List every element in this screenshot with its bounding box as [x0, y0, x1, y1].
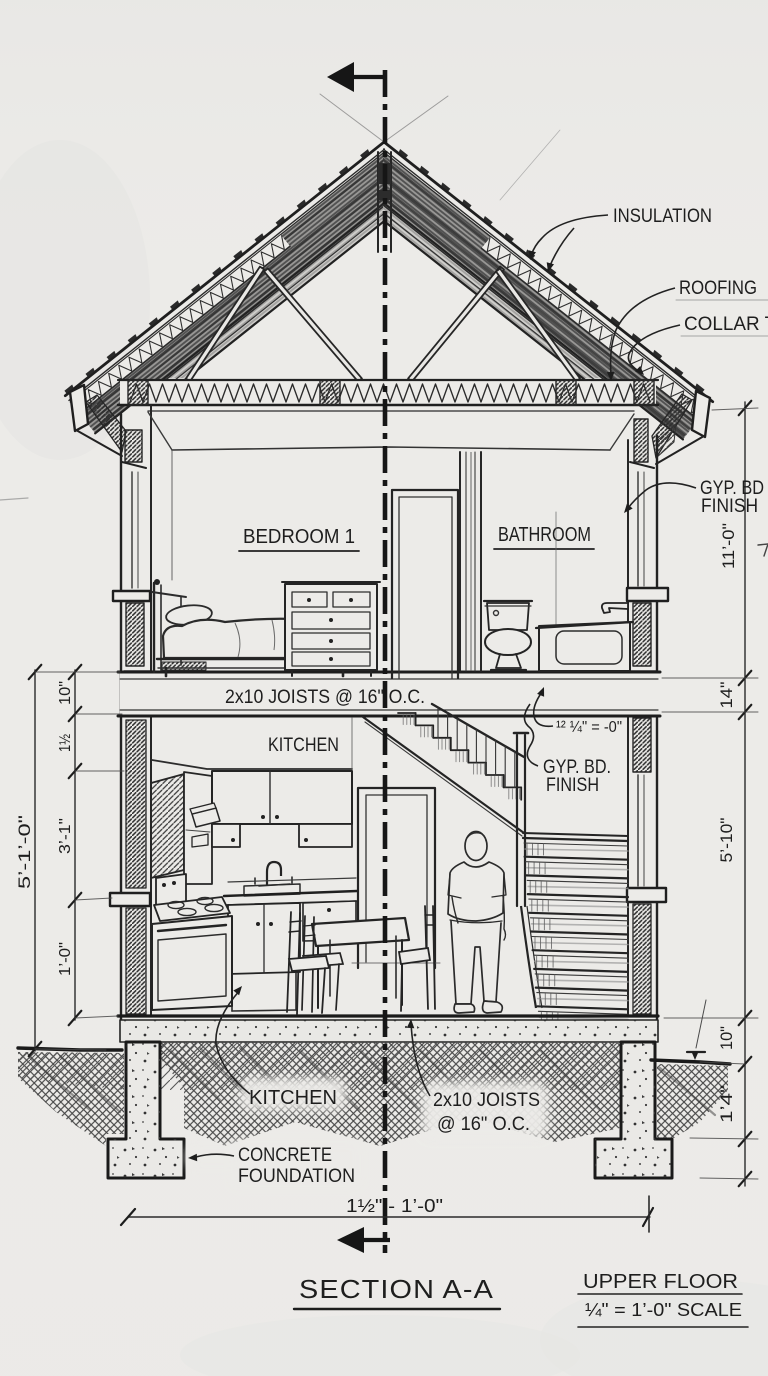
svg-text:FOUNDATION: FOUNDATION	[238, 1166, 355, 1187]
svg-text:3’-1": 3’-1"	[57, 818, 74, 854]
svg-text:@ 16" O.C.: @ 16" O.C.	[437, 1114, 530, 1135]
svg-text:5’-10": 5’-10"	[717, 818, 736, 863]
svg-text:BEDROOM 1: BEDROOM 1	[243, 526, 355, 548]
svg-text:14": 14"	[717, 682, 736, 709]
svg-text:CONCRETE: CONCRETE	[238, 1145, 332, 1166]
svg-text:2x10 JOISTS: 2x10 JOISTS	[433, 1090, 540, 1111]
svg-text:¼" = 1’-0" SCALE: ¼" = 1’-0" SCALE	[585, 1300, 742, 1320]
svg-text:5’-1’-0": 5’-1’-0"	[15, 815, 34, 889]
svg-text:1’4": 1’4"	[717, 1085, 736, 1123]
svg-text:1½: 1½	[57, 734, 74, 752]
svg-text:COLLAR TIE: COLLAR TIE	[684, 314, 768, 335]
svg-text:KITCHEN: KITCHEN	[268, 735, 339, 756]
svg-text:FINISH: FINISH	[701, 496, 758, 517]
svg-text:SECTION A-A: SECTION A-A	[299, 1274, 494, 1304]
svg-text:2x10 JOISTS @ 16" O.C.: 2x10 JOISTS @ 16" O.C.	[225, 687, 425, 708]
svg-text:1’-0": 1’-0"	[57, 942, 74, 976]
svg-text:UPPER FLOOR: UPPER FLOOR	[583, 1271, 738, 1293]
svg-text:BATHROOM: BATHROOM	[498, 524, 591, 546]
svg-text:11’-0": 11’-0"	[719, 523, 738, 569]
svg-text:FINISH: FINISH	[546, 775, 599, 796]
svg-text:¹² ¼" = -0": ¹² ¼" = -0"	[556, 719, 622, 736]
svg-text:KITCHEN: KITCHEN	[249, 1087, 337, 1109]
svg-text:1½" - 1’-0": 1½" - 1’-0"	[346, 1196, 443, 1216]
svg-text:10": 10"	[717, 1026, 736, 1050]
svg-text:INSULATION: INSULATION	[613, 206, 712, 227]
svg-text:ROOFING: ROOFING	[679, 278, 757, 299]
svg-text:10": 10"	[57, 681, 74, 705]
